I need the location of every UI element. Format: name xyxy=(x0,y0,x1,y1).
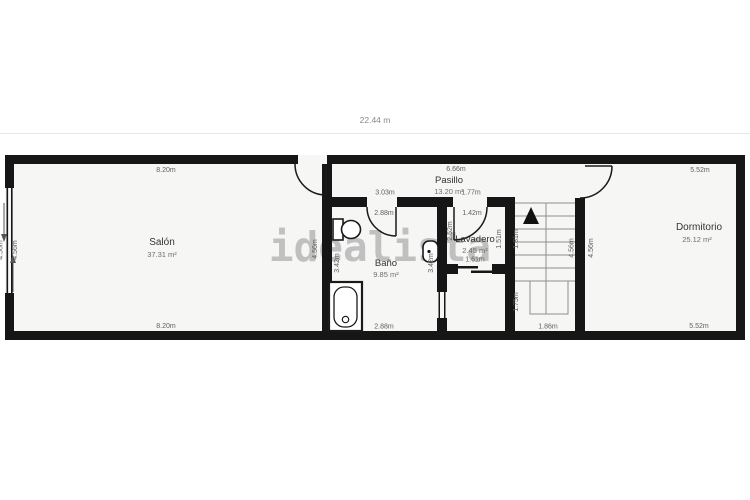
wall-segment xyxy=(5,293,14,340)
dim-lavadero-top-inner: 1.42m xyxy=(462,210,482,217)
toilet-bowl-icon xyxy=(342,221,361,239)
room-label-pasillo: Pasillo xyxy=(435,175,463,186)
wall-segment xyxy=(327,155,745,164)
room-area-dormitorio: 25.12 m² xyxy=(682,235,712,244)
dim-lavadero-right: 1.51m xyxy=(496,229,503,249)
door-opening xyxy=(444,292,446,318)
dim-stairs-bottom: 1.86m xyxy=(538,324,558,331)
wall-segment xyxy=(575,198,585,331)
dim-salon-window-outer: 4.56m xyxy=(0,240,5,260)
dim-bano-left: 3.42m xyxy=(334,253,341,273)
wall-segment xyxy=(437,264,458,274)
wall-segment xyxy=(5,155,298,164)
dim-bano-bottom: 2.88m xyxy=(374,324,394,331)
dim-dormitorio-bottom: 5.52m xyxy=(689,323,709,330)
room-area-pasillo: 13.20 m² xyxy=(434,187,464,196)
wall-segment xyxy=(332,197,367,207)
dim-dormitorio-left: 4.56m xyxy=(588,238,595,258)
dim-salon-top: 8.20m xyxy=(156,167,176,174)
wall-segment xyxy=(437,318,447,331)
dim-lavadero-bottom: 1.61m xyxy=(465,257,485,264)
room-area-lavadero: 2.45 m² xyxy=(462,246,488,255)
dim-bano-top-outer: 3.03m xyxy=(375,190,395,197)
dim-bano-right: 3.42m xyxy=(428,253,435,273)
sliding-door xyxy=(457,266,478,269)
dim-stairs-lower: 1.75m xyxy=(513,292,520,312)
room-area-salon: 37.31 m² xyxy=(147,250,177,259)
dim-salon-bottom: 8.20m xyxy=(156,323,176,330)
floor-plan: 22.44 m idealista xyxy=(0,0,750,500)
sliding-door xyxy=(471,271,492,274)
dim-salon-window-inner: 4.56m xyxy=(12,240,19,260)
wall-segment xyxy=(437,197,447,292)
dim-stairs-right: 4.56m xyxy=(569,238,576,258)
dim-bano-top-inner: 2.88m xyxy=(374,210,394,217)
dim-lavadero-top-outer: 1.77m xyxy=(461,190,481,197)
dim-lavadero-left: 2.52m xyxy=(447,221,454,241)
wall-segment xyxy=(5,331,745,340)
dim-dormitorio-top: 5.52m xyxy=(690,167,710,174)
wall-segment xyxy=(5,155,14,188)
washbasin-drain-icon xyxy=(427,250,430,253)
wall-segment xyxy=(492,264,515,274)
room-label-salon: Salón xyxy=(149,237,175,248)
window xyxy=(7,188,9,293)
room-label-bano: Baño xyxy=(375,258,397,269)
wall-segment xyxy=(447,197,453,207)
door-opening xyxy=(439,292,441,318)
dim-salon-right: 4.56m xyxy=(312,239,319,259)
floor-plan-page: 22.44 m idealista xyxy=(0,0,750,500)
total-width-label: 22.44 m xyxy=(360,115,391,125)
dim-stairs-upper: 1.81m xyxy=(513,229,520,249)
dim-pasillo-top: 6.66m xyxy=(446,166,466,173)
room-area-bano: 9.85 m² xyxy=(373,270,399,279)
room-label-lavadero: Lavadero xyxy=(455,234,495,245)
wall-segment xyxy=(736,155,745,340)
room-label-dormitorio: Dormitorio xyxy=(676,222,723,233)
